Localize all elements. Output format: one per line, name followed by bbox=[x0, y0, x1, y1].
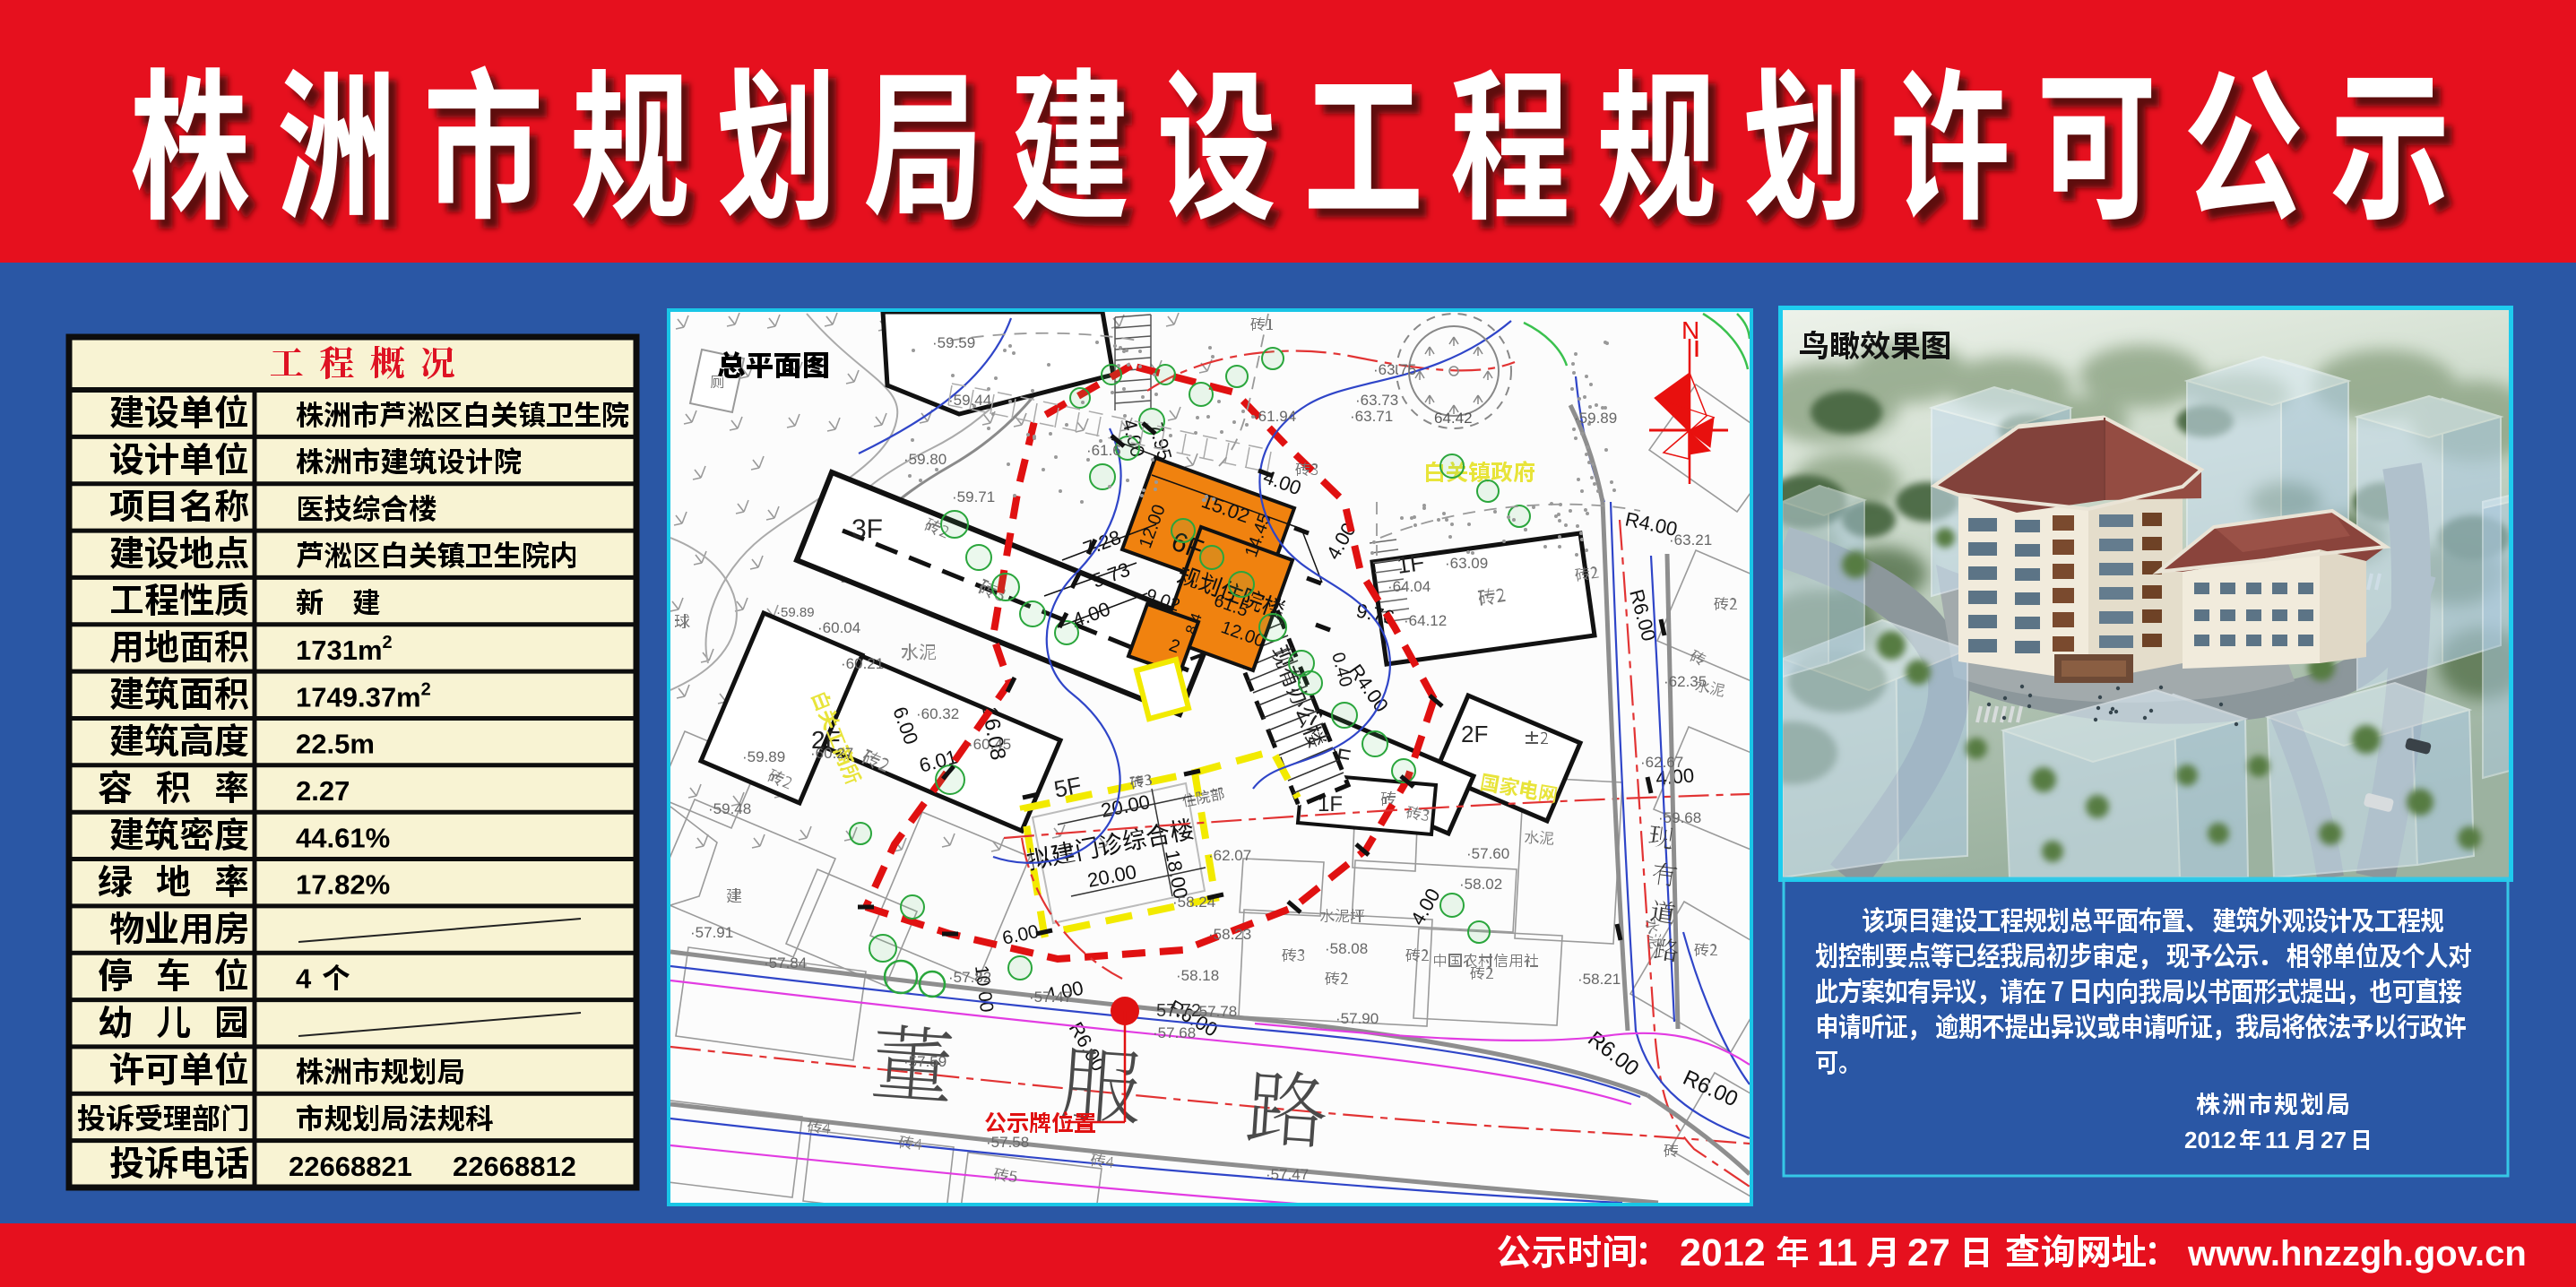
svg-text:N: N bbox=[1681, 316, 1699, 344]
svg-text:·59.80: ·59.80 bbox=[903, 451, 947, 468]
svg-text:·59.59: ·59.59 bbox=[932, 334, 975, 351]
svg-text:·59.89: ·59.89 bbox=[1574, 410, 1617, 427]
svg-text:2012: 2012 bbox=[2184, 1127, 2236, 1153]
svg-text:·57.90: ·57.90 bbox=[1336, 1010, 1379, 1027]
svg-text:·62.07: ·62.07 bbox=[1208, 847, 1251, 864]
svg-text:·63.21: ·63.21 bbox=[1669, 531, 1712, 548]
svg-text:2.27: 2.27 bbox=[296, 775, 350, 807]
svg-text:27: 27 bbox=[1907, 1231, 1950, 1274]
svg-text:·59.48: ·59.48 bbox=[708, 800, 751, 817]
svg-text:·62.67: ·62.67 bbox=[1640, 754, 1683, 771]
svg-text:·60.32: ·60.32 bbox=[916, 705, 959, 722]
svg-text:1749.37m2: 1749.37m2 bbox=[296, 679, 431, 713]
svg-text:11: 11 bbox=[2265, 1127, 2290, 1153]
svg-text:22668812: 22668812 bbox=[453, 1151, 576, 1182]
svg-text:·61.94: ·61.94 bbox=[1253, 408, 1296, 425]
svg-text:11: 11 bbox=[1817, 1231, 1857, 1274]
svg-text:·64.04: ·64.04 bbox=[1387, 578, 1431, 595]
svg-text:17.82%: 17.82% bbox=[296, 869, 390, 901]
svg-text:·58.18: ·58.18 bbox=[1176, 967, 1219, 984]
svg-text:·57.84: ·57.84 bbox=[764, 954, 807, 972]
svg-text:·58.23: ·58.23 bbox=[1208, 926, 1251, 943]
svg-text:·57.91: ·57.91 bbox=[690, 924, 733, 941]
svg-text:22668821: 22668821 bbox=[289, 1151, 412, 1182]
svg-text:·59.89: ·59.89 bbox=[742, 748, 785, 765]
svg-text:·63.75: ·63.75 bbox=[1373, 361, 1416, 378]
svg-text:·57.58: ·57.58 bbox=[986, 1134, 1029, 1151]
svg-text:·57.68: ·57.68 bbox=[1153, 1024, 1196, 1041]
svg-text:·64.12: ·64.12 bbox=[1404, 612, 1447, 629]
svg-text:·60.27: ·60.27 bbox=[810, 745, 853, 762]
svg-text:·59.68: ·59.68 bbox=[1658, 809, 1701, 826]
svg-text:·63.09: ·63.09 bbox=[1445, 555, 1488, 572]
svg-text:64.42: 64.42 bbox=[1434, 410, 1473, 427]
svg-text:www.hnzzgh.gov.cn: www.hnzzgh.gov.cn bbox=[2187, 1234, 2527, 1274]
svg-text:·60.45: ·60.45 bbox=[968, 736, 1011, 753]
svg-text:2012: 2012 bbox=[1680, 1231, 1766, 1274]
svg-text:·57.47: ·57.47 bbox=[1266, 1166, 1309, 1183]
svg-text:·57.82: ·57.82 bbox=[948, 969, 991, 986]
svg-text:·57.59: ·57.59 bbox=[903, 1053, 947, 1070]
svg-text:·63.71: ·63.71 bbox=[1350, 408, 1393, 425]
svg-text:·58.21: ·58.21 bbox=[1578, 971, 1621, 988]
svg-text:·61.6: ·61.6 bbox=[1086, 442, 1121, 459]
svg-text:·63.73: ·63.73 bbox=[1355, 392, 1398, 409]
svg-text:·57.78: ·57.78 bbox=[1194, 1003, 1237, 1020]
svg-text:22.5m: 22.5m bbox=[296, 729, 375, 760]
svg-text:3F: 3F bbox=[851, 514, 883, 544]
svg-text:·57.60: ·57.60 bbox=[1466, 845, 1509, 862]
svg-text:44.61%: 44.61% bbox=[296, 822, 390, 853]
svg-text:·60.21: ·60.21 bbox=[841, 655, 884, 672]
svg-text:1731m2: 1731m2 bbox=[296, 633, 393, 666]
svg-text:·57.47: ·57.47 bbox=[1029, 989, 1072, 1006]
svg-text:1F: 1F bbox=[1396, 548, 1426, 579]
svg-text:·59.89: ·59.89 bbox=[776, 605, 815, 620]
svg-text:5F: 5F bbox=[1051, 772, 1084, 803]
svg-text:·59.71: ·59.71 bbox=[952, 488, 995, 505]
svg-text:·60.04: ·60.04 bbox=[817, 619, 860, 636]
svg-text:2F: 2F bbox=[1461, 721, 1488, 747]
svg-text:·59.44: ·59.44 bbox=[948, 392, 991, 409]
svg-text:27: 27 bbox=[2321, 1127, 2347, 1153]
svg-text:·58.02: ·58.02 bbox=[1459, 876, 1502, 893]
svg-text:·62.35: ·62.35 bbox=[1664, 673, 1707, 690]
svg-text:·58.08: ·58.08 bbox=[1325, 940, 1368, 957]
svg-text:4: 4 bbox=[296, 963, 312, 994]
